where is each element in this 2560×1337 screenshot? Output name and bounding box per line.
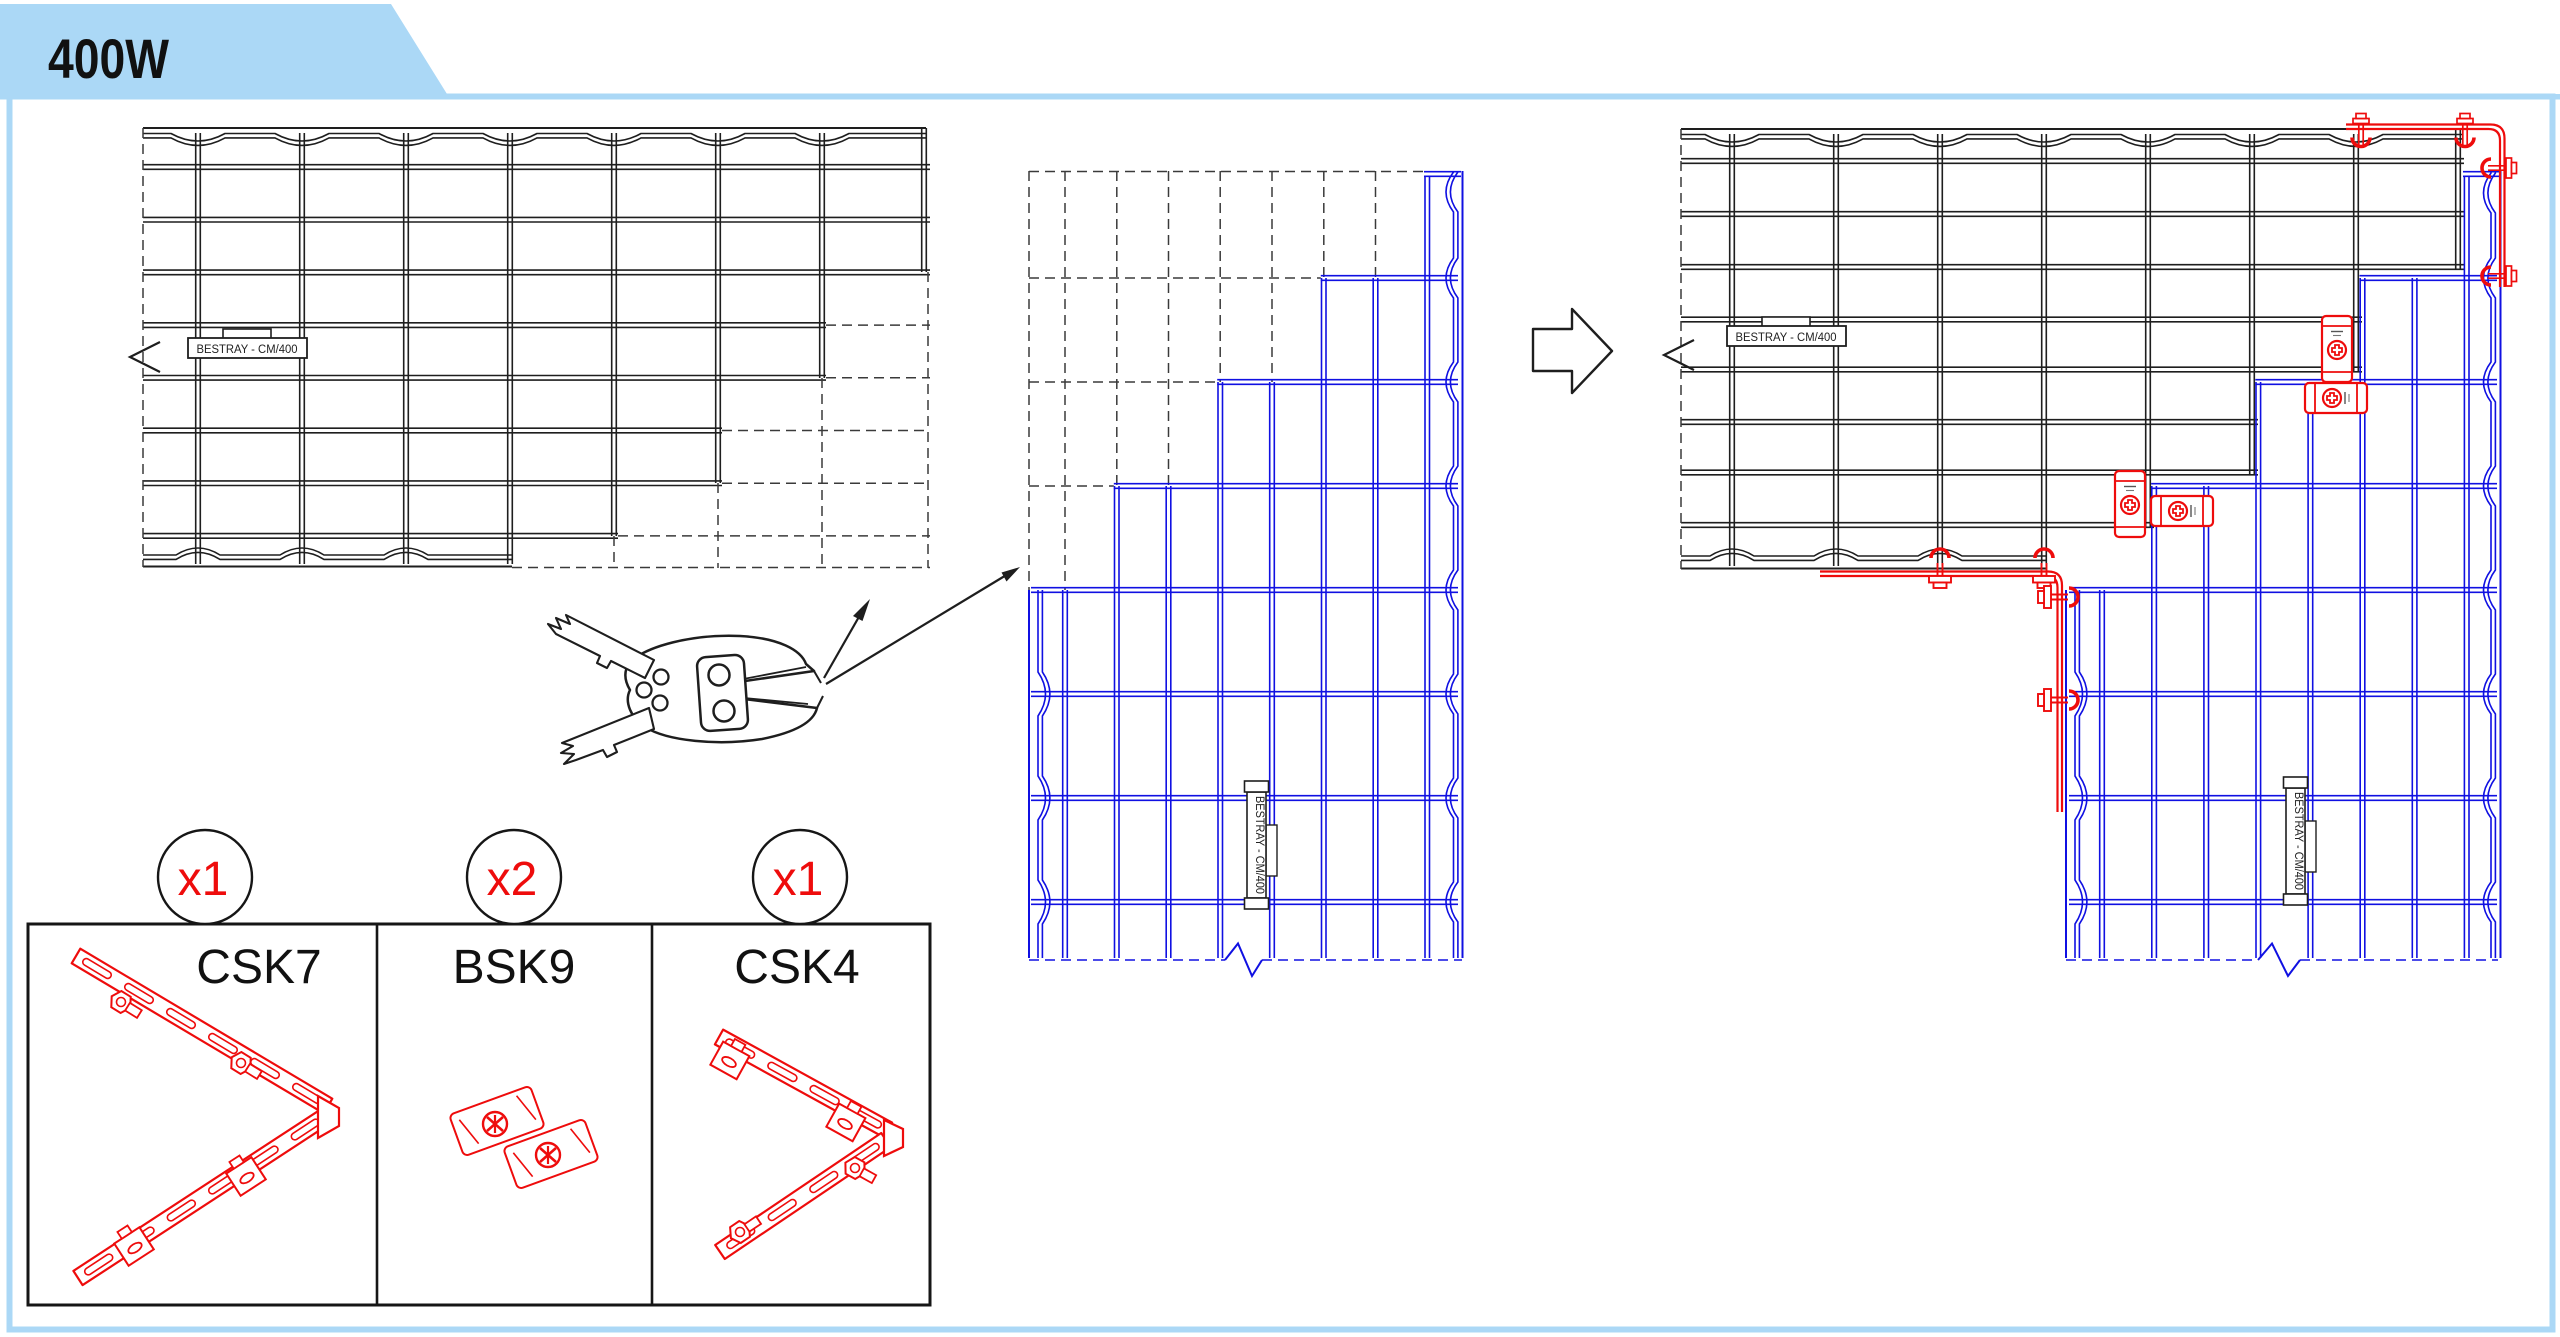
svg-text:CSK4: CSK4	[734, 941, 859, 994]
svg-text:BESTRAY - CM/400: BESTRAY - CM/400	[1253, 796, 1265, 894]
svg-text:CSK7: CSK7	[196, 941, 321, 994]
svg-text:BESTRAY - CM/400: BESTRAY - CM/400	[1736, 332, 1837, 344]
svg-text:x1: x1	[773, 853, 824, 906]
svg-text:x1: x1	[178, 853, 229, 906]
svg-text:x2: x2	[487, 853, 538, 906]
svg-text:400W: 400W	[48, 27, 169, 90]
svg-text:BESTRAY - CM/400: BESTRAY - CM/400	[2292, 792, 2304, 890]
svg-text:BSK9: BSK9	[453, 941, 576, 994]
svg-text:BESTRAY - CM/400: BESTRAY - CM/400	[197, 344, 298, 356]
